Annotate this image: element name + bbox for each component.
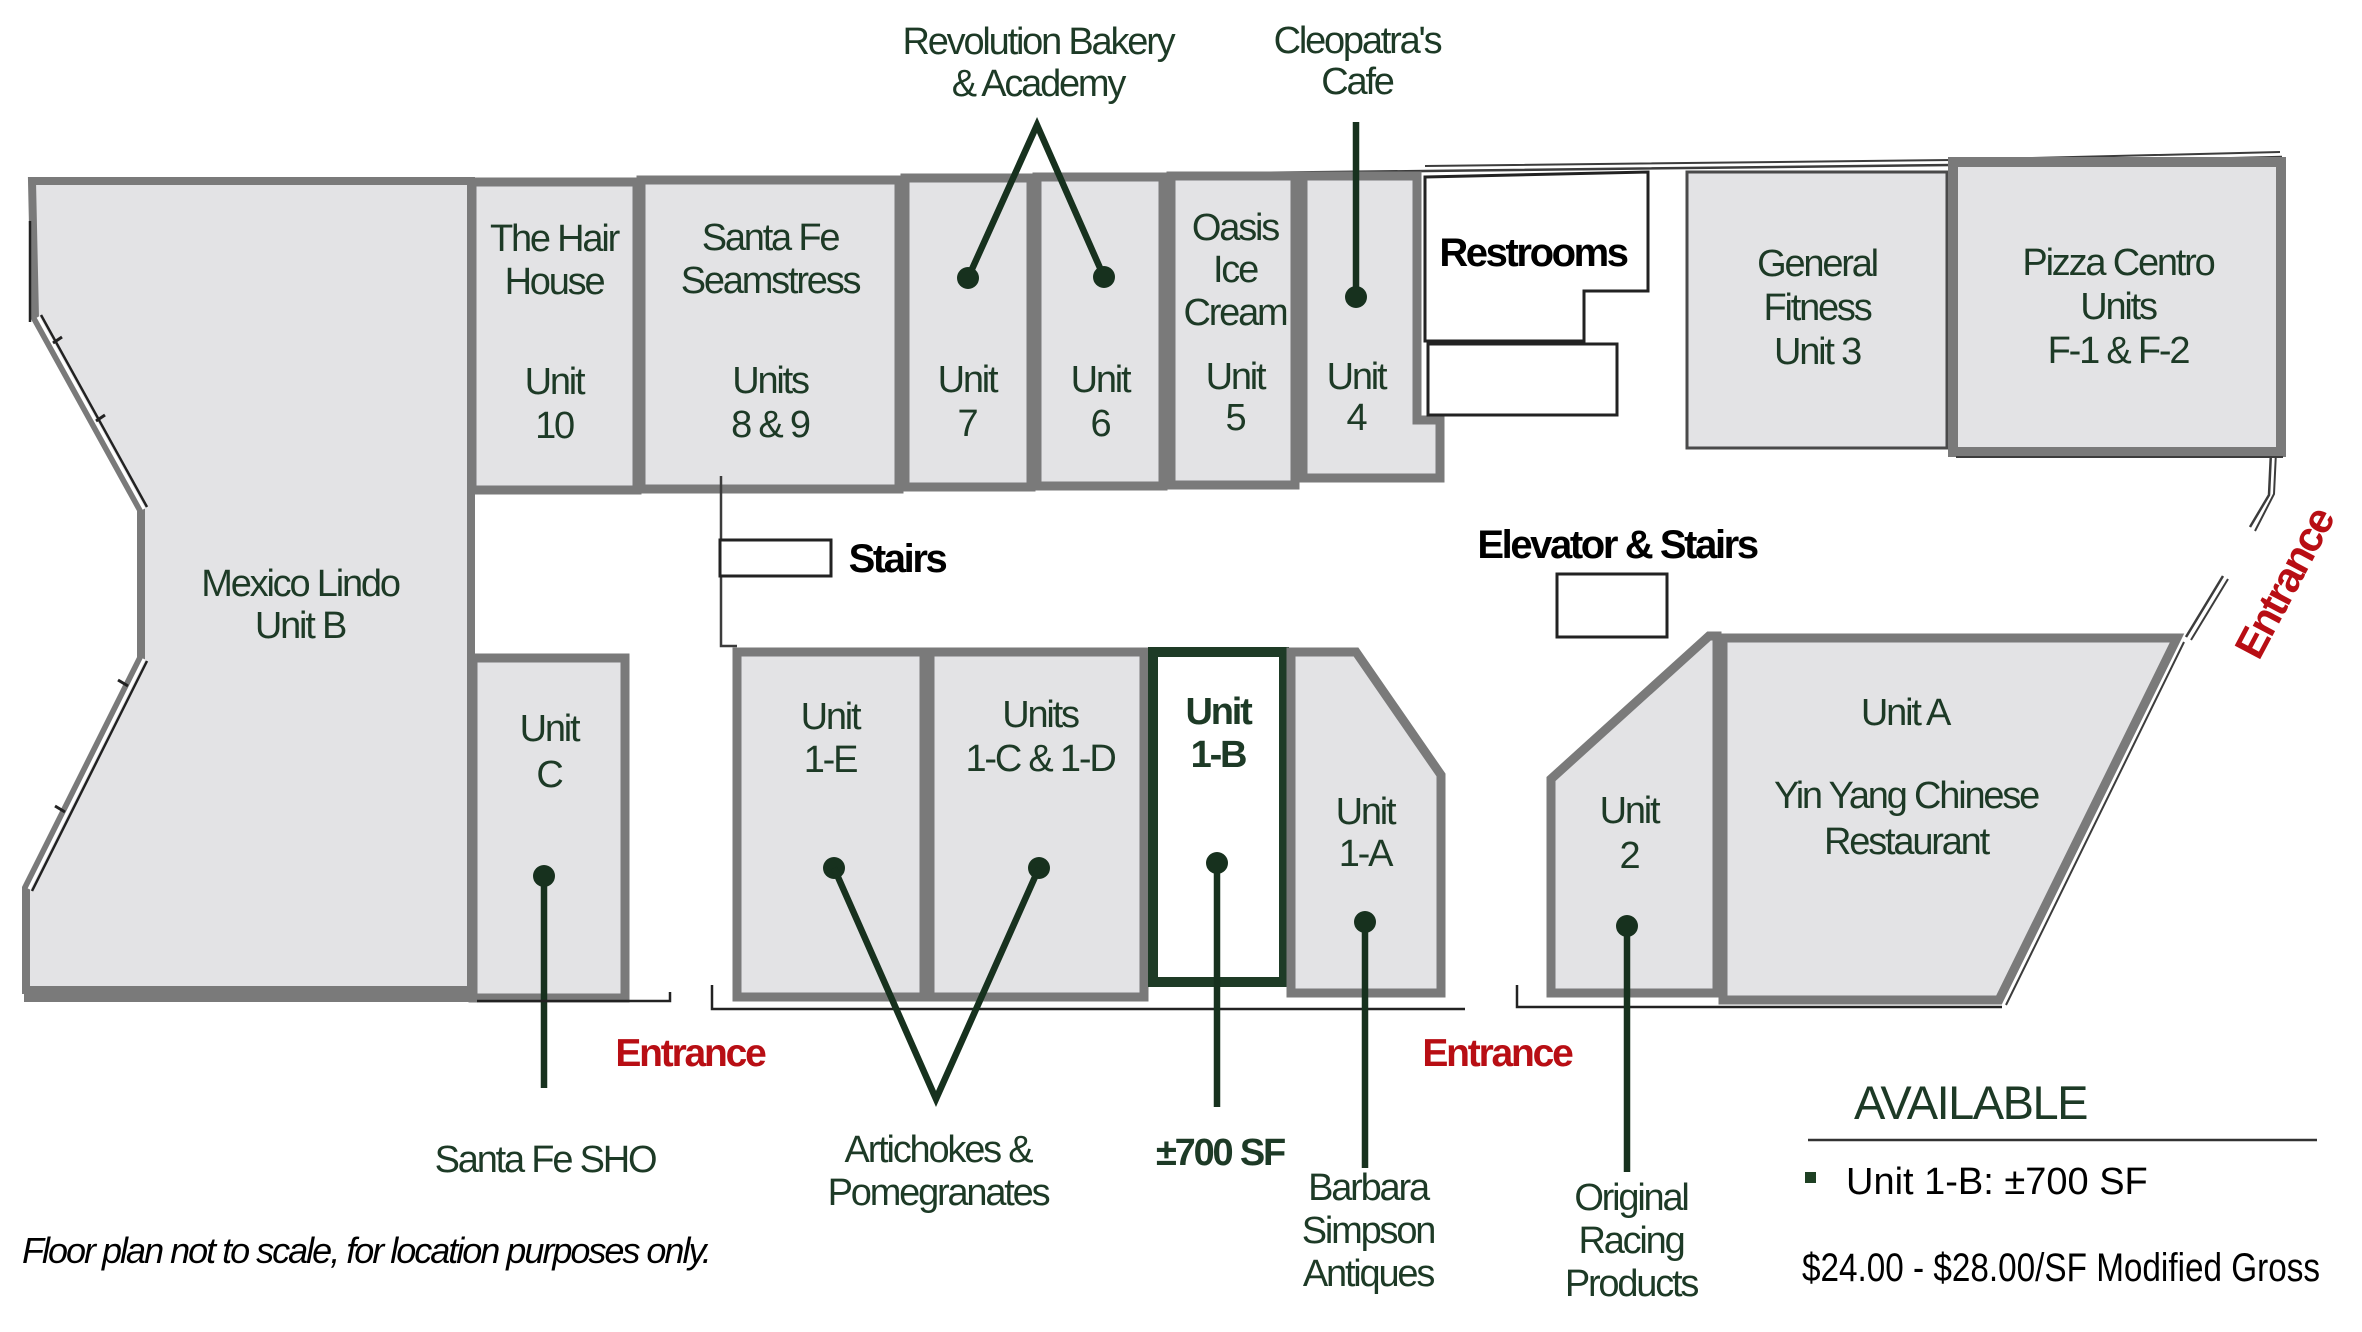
svg-text:Pomegranates: Pomegranates (828, 1172, 1050, 1214)
svg-text:Restaurant: Restaurant (1824, 821, 1991, 863)
svg-text:F-1 & F-2: F-1 & F-2 (2048, 330, 2190, 372)
svg-text:The Hair: The Hair (490, 218, 621, 260)
svg-text:Original: Original (1574, 1177, 1687, 1219)
svg-text:Restrooms: Restrooms (1439, 231, 1627, 275)
svg-text:1-A: 1-A (1339, 833, 1394, 875)
svg-text:Unit: Unit (520, 708, 581, 750)
svg-text:1-B: 1-B (1191, 734, 1246, 776)
svg-text:Unit: Unit (1336, 791, 1397, 833)
svg-text:$24.00 - $28.00/SF Modified Gr: $24.00 - $28.00/SF Modified Gross (1802, 1246, 2320, 1290)
svg-text:Unit: Unit (1600, 790, 1661, 832)
svg-text:Units: Units (732, 360, 809, 402)
svg-text:8 & 9: 8 & 9 (731, 404, 810, 446)
svg-text:Santa Fe SHO: Santa Fe SHO (435, 1139, 656, 1181)
svg-text:Products: Products (1565, 1263, 1699, 1305)
svg-text:Seamstress: Seamstress (681, 260, 861, 302)
svg-text:AVAILABLE: AVAILABLE (1854, 1076, 2087, 1129)
svg-text:Mexico Lindo: Mexico Lindo (201, 563, 400, 605)
svg-text:1-E: 1-E (804, 739, 857, 781)
svg-text:±700 SF: ±700 SF (1156, 1132, 1285, 1174)
svg-text:Fitness: Fitness (1763, 287, 1871, 329)
svg-text:Ice: Ice (1213, 249, 1258, 291)
svg-text:House: House (505, 261, 605, 303)
svg-text:Artichokes &: Artichokes & (845, 1129, 1034, 1171)
svg-text:Cleopatra's: Cleopatra's (1274, 20, 1442, 62)
svg-text:Stairs: Stairs (849, 537, 947, 581)
svg-text:Unit: Unit (1071, 359, 1132, 401)
svg-text:& Academy: & Academy (952, 63, 1127, 105)
svg-text:Unit: Unit (525, 361, 586, 403)
svg-text:Unit: Unit (938, 359, 999, 401)
svg-text:Entrance: Entrance (1422, 1032, 1573, 1075)
svg-text:Simpson: Simpson (1302, 1210, 1435, 1252)
svg-text:4: 4 (1347, 397, 1368, 439)
svg-text:Floor plan not to scale, for l: Floor plan not to scale, for location pu… (22, 1230, 710, 1271)
svg-text:Revolution Bakery: Revolution Bakery (903, 21, 1176, 63)
svg-text:10: 10 (535, 405, 574, 447)
svg-text:Unit B: Unit B (255, 605, 346, 647)
svg-text:5: 5 (1226, 397, 1246, 439)
svg-text:C: C (536, 754, 562, 796)
svg-text:Elevator & Stairs: Elevator & Stairs (1477, 523, 1757, 567)
svg-text:Unit: Unit (1327, 356, 1388, 398)
svg-text:General: General (1757, 243, 1877, 285)
svg-text:Unit: Unit (1206, 356, 1267, 398)
svg-text:1-C & 1-D: 1-C & 1-D (965, 738, 1115, 780)
svg-text:Entrance: Entrance (615, 1032, 766, 1075)
svg-text:Unit 1-B: ±700 SF: Unit 1-B: ±700 SF (1846, 1161, 2148, 1203)
svg-text:Oasis: Oasis (1192, 207, 1279, 249)
svg-text:Pizza Centro: Pizza Centro (2022, 242, 2214, 284)
svg-text:Antiques: Antiques (1303, 1253, 1434, 1295)
svg-text:Unit A: Unit A (1861, 692, 1952, 734)
svg-text:7: 7 (958, 403, 978, 445)
svg-text:Cream: Cream (1183, 292, 1287, 334)
svg-text:Unit: Unit (1185, 691, 1253, 733)
svg-text:Barbara: Barbara (1308, 1167, 1431, 1209)
svg-text:6: 6 (1091, 403, 1111, 445)
svg-text:Units: Units (1002, 694, 1079, 736)
svg-text:2: 2 (1620, 835, 1640, 877)
svg-text:Unit: Unit (801, 696, 862, 738)
svg-text:Cafe: Cafe (1321, 61, 1394, 103)
svg-text:Racing: Racing (1578, 1220, 1683, 1262)
svg-text:Unit 3: Unit 3 (1774, 331, 1861, 373)
svg-text:Santa Fe: Santa Fe (702, 217, 840, 259)
svg-text:Units: Units (2080, 286, 2157, 328)
svg-text:Yin Yang Chinese: Yin Yang Chinese (1774, 775, 2039, 817)
